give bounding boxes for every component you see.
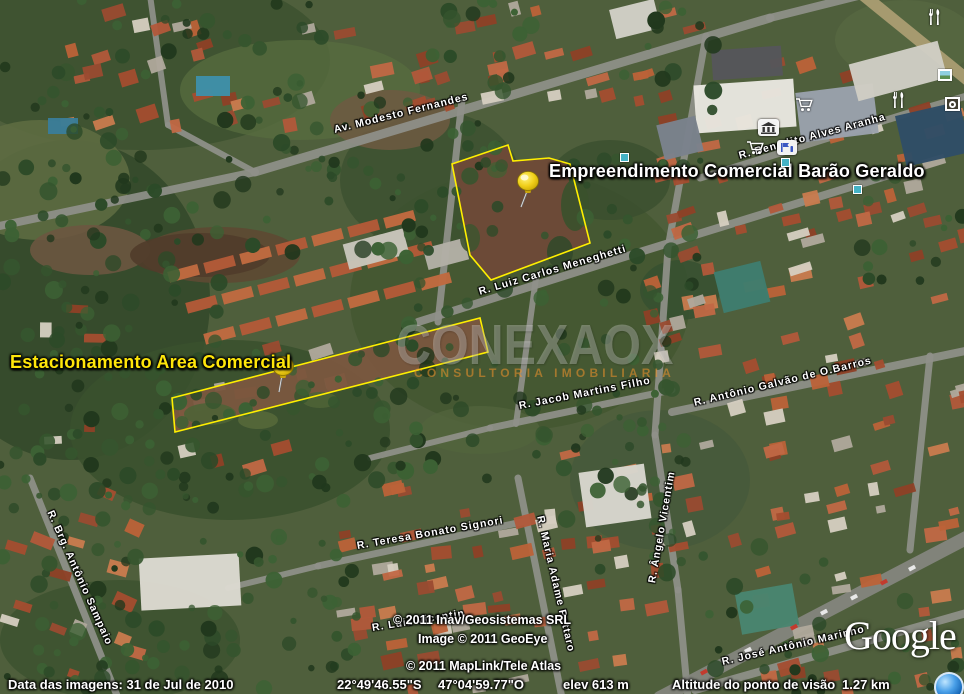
webcam-ring	[949, 101, 956, 108]
imagery-date: Data das imagens: 31 de Jul de 2010	[8, 677, 233, 692]
museum-glyph	[761, 122, 776, 134]
shopping-cart-icon[interactable]	[746, 140, 766, 160]
google-logo: Google	[844, 612, 956, 659]
elevation-readout: elev 613 m	[563, 677, 629, 692]
webcam-icon[interactable]	[945, 97, 960, 111]
copyright-image-credit: Image © 2011 GeoEye	[418, 632, 547, 646]
eye-altitude-label: Altitude do ponto de visão	[672, 677, 835, 692]
status-globe-icon	[934, 672, 964, 694]
photo-icon[interactable]	[938, 69, 952, 81]
google-earth-viewport[interactable]: Av. Modesto Fernandes R. Luiz Carlos Men…	[0, 0, 964, 694]
copyright-imagery-provider: © 2011 Inav/Geosistemas SRL	[393, 613, 571, 627]
cart-glyph	[746, 140, 766, 155]
eye-altitude-value: 1.27 km	[842, 677, 890, 692]
fork-knife-glyph	[890, 91, 906, 109]
placemark-square-icon[interactable]	[620, 153, 629, 162]
pushpin-highlight	[521, 175, 529, 181]
watermark-tagline: CONSULTORIA IMOBILIARIA	[414, 366, 675, 380]
restaurant-icon[interactable]	[890, 91, 906, 114]
pushpin-empreendimento[interactable]	[518, 172, 539, 208]
cart-glyph	[795, 97, 815, 112]
longitude-readout: 47°04'59.77"O	[438, 677, 524, 692]
fork-knife-glyph	[926, 8, 942, 26]
restaurant-icon[interactable]	[926, 8, 942, 31]
copyright-map-data: © 2011 MapLink/Tele Atlas	[406, 659, 561, 673]
placemark-label-estacionamento[interactable]: Estacionamento Area Comercial	[10, 352, 291, 373]
shopping-cart-icon[interactable]	[795, 97, 815, 117]
pushpin-head	[518, 172, 539, 191]
info-glyph	[780, 142, 794, 153]
museum-icon[interactable]	[758, 119, 779, 136]
placemark-square-icon[interactable]	[853, 185, 862, 194]
latitude-readout: 22°49'46.55"S	[337, 677, 422, 692]
placemark-label-empreendimento[interactable]: Empreendimento Comercial Barão Geraldo	[549, 161, 925, 182]
info-icon[interactable]	[777, 140, 797, 155]
placemark-square-icon[interactable]	[781, 158, 790, 167]
pushpin-needle-highlight	[521, 193, 527, 208]
